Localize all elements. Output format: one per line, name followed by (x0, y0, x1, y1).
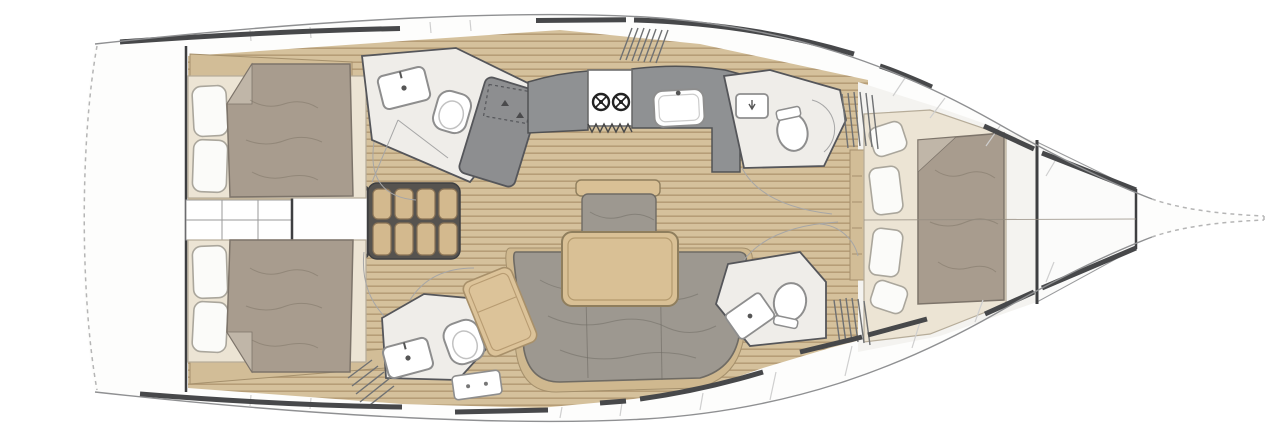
aft-cabin-top (188, 54, 366, 198)
forward-cabin (850, 82, 1037, 352)
washbasin (736, 94, 768, 118)
yacht-floorplan (0, 0, 1280, 436)
counter-left (528, 71, 588, 133)
burner (593, 94, 609, 110)
forward-cabin-step (850, 150, 864, 280)
burner (613, 94, 629, 110)
stove (588, 70, 632, 132)
companionway-steps (368, 183, 460, 259)
galley-sink (653, 89, 705, 128)
salon-table (562, 232, 678, 306)
engine-box (186, 200, 292, 240)
